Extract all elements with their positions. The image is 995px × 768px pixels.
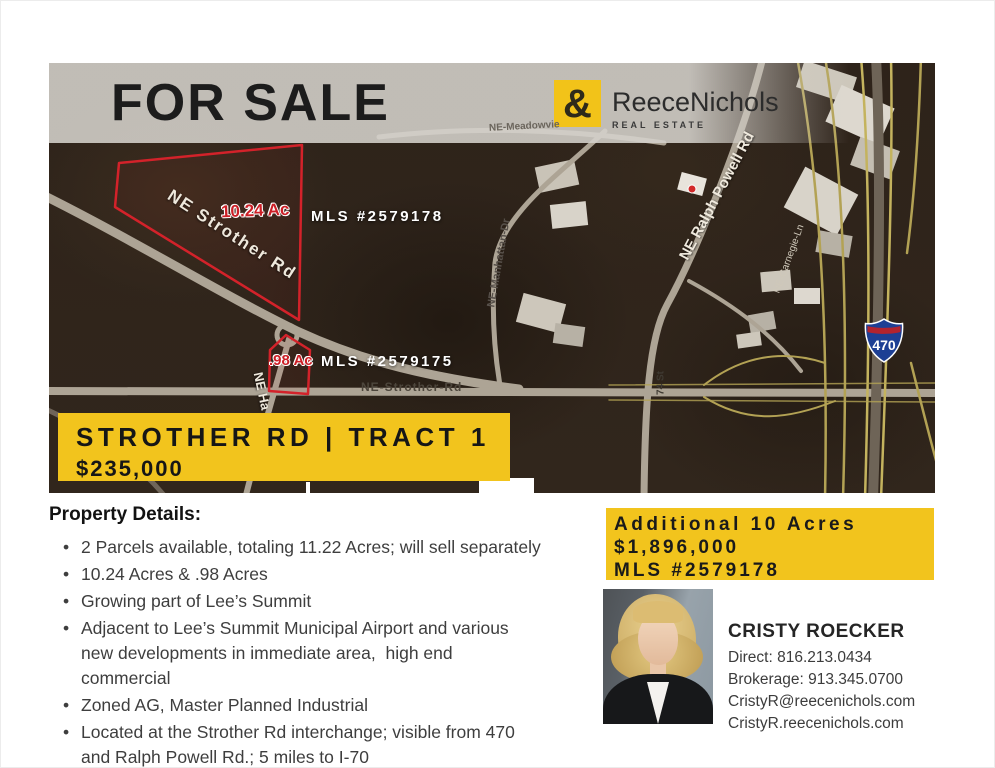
detail-bullet: Located at the Strother Rd interchange; …: [61, 720, 621, 768]
listing-title-banner: STROTHER RD | TRACT 1 $235,000: [58, 413, 510, 481]
agent-email: CristyR@reecenichols.com: [728, 693, 915, 711]
agent-website: CristyR.reecenichols.com: [728, 715, 904, 733]
agent-name: CRISTY ROECKER: [728, 621, 905, 643]
road-label-strother-horizontal: NE-Strother-Rd: [361, 380, 462, 394]
detail-bullet: 2 Parcels available, totaling 11.22 Acre…: [61, 535, 621, 560]
brand-name: ReeceNichols: [612, 89, 779, 116]
for-sale-title: FOR SALE: [111, 73, 390, 133]
parcel-acres-label-1: 10.24 Ac: [221, 200, 290, 222]
parcel-acres-label-2: .98 Ac: [269, 352, 313, 369]
brand-tagline: REAL ESTATE: [612, 120, 779, 130]
interstate-shield: 470: [865, 319, 902, 362]
agent-photo: [603, 589, 713, 724]
additional-acres-box: Additional 10 Acres $1,896,000 MLS #2579…: [606, 508, 934, 580]
detail-bullet: Zoned AG, Master Planned Industrial: [61, 693, 621, 718]
property-details-list: 2 Parcels available, totaling 11.22 Acre…: [61, 535, 621, 768]
road-label-74th-st: 74 St: [656, 371, 667, 395]
parcel-mls-label-2: MLS #2579175: [321, 353, 454, 370]
brand-logo: & ReeceNichols REAL ESTATE: [554, 80, 779, 130]
parcel-mls-label-1: MLS #2579178: [311, 208, 444, 225]
brand-ampersand-icon: &: [554, 80, 601, 127]
flyer-page: 470 FOR SALE & ReeceNichols REAL ESTATE …: [0, 0, 995, 768]
interstate-number: 470: [872, 337, 896, 353]
additional-acres-price: $1,896,000: [614, 536, 934, 559]
property-details-heading: Property Details:: [49, 504, 201, 526]
map-seam: [306, 482, 310, 493]
listing-price: $235,000: [76, 456, 510, 482]
detail-bullet: Growing part of Lee’s Summit: [61, 589, 621, 614]
detail-bullet: Adjacent to Lee’s Summit Municipal Airpo…: [61, 616, 621, 691]
additional-acres-title: Additional 10 Acres: [614, 513, 934, 536]
detail-bullet: 10.24 Acres & .98 Acres: [61, 562, 621, 587]
agent-brokerage-phone: Brokerage: 913.345.0700: [728, 671, 903, 689]
parcel-outline-1024: [115, 145, 302, 320]
agent-direct-phone: Direct: 816.213.0434: [728, 649, 872, 667]
map-marker: [688, 185, 696, 193]
additional-acres-mls: MLS #2579178: [614, 559, 934, 582]
agent-photo-bangs: [633, 601, 683, 623]
listing-title: STROTHER RD | TRACT 1: [76, 422, 510, 453]
